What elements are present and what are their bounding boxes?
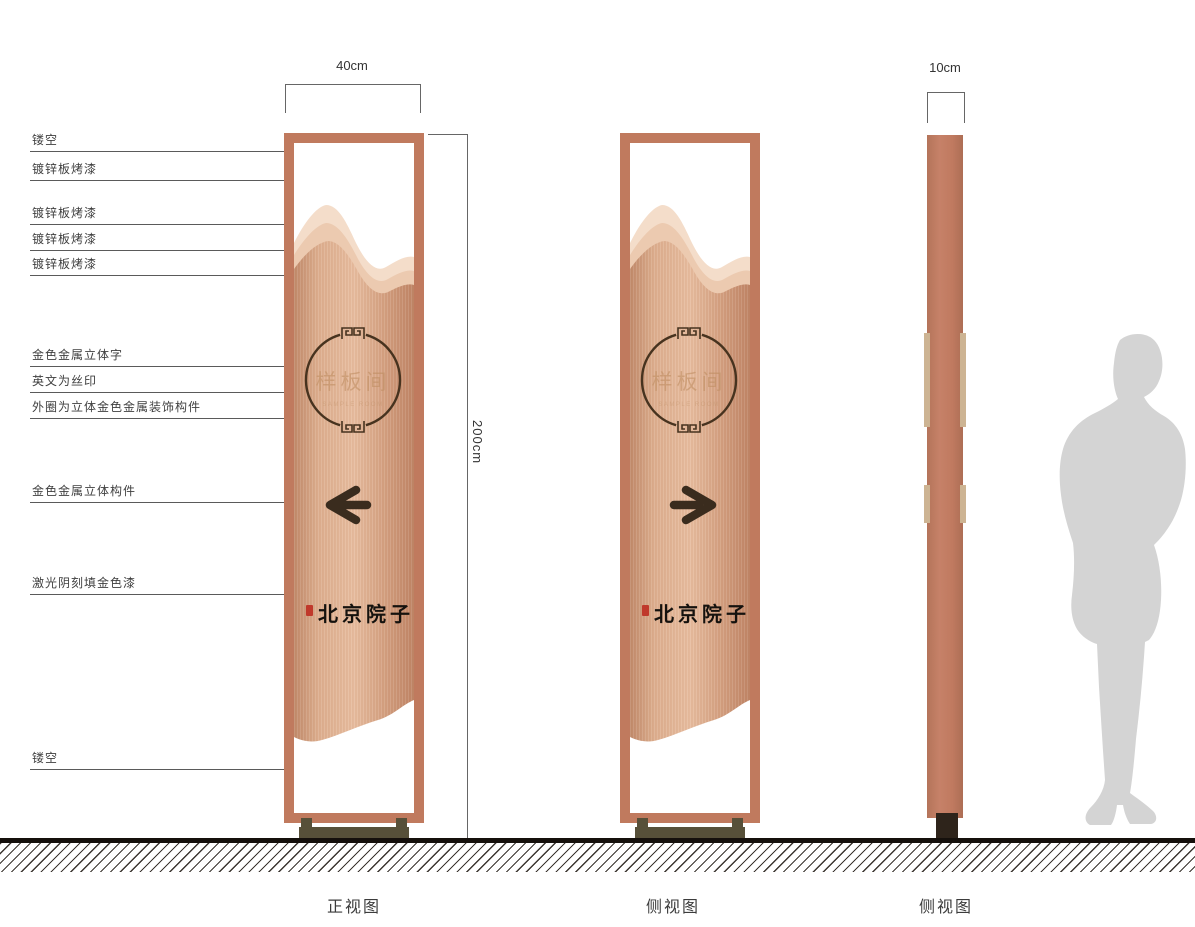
side-profile-sign bbox=[927, 135, 963, 818]
callout-text: 镀锌板烤漆 bbox=[32, 255, 97, 272]
stand-base bbox=[299, 827, 409, 838]
signage-spec-sheet: 镂空 镀锌板烤漆 镀锌板烤漆 镀锌板烤漆 镀锌板烤漆 金色金属立体字 英文为丝印… bbox=[0, 0, 1195, 927]
red-seal-icon bbox=[306, 605, 313, 616]
callout-text: 镀锌板烤漆 bbox=[32, 160, 97, 177]
ground-hatch bbox=[0, 843, 1195, 872]
side-view-sign: 样板间 SAMPLE ROOM 北京院子 bbox=[620, 133, 760, 823]
callout-label: 镀锌板烤漆 bbox=[30, 254, 293, 276]
profile-protrusion bbox=[924, 485, 930, 523]
callout-text: 外圈为立体金色金属装饰构件 bbox=[32, 398, 201, 415]
callout-text: 金色金属立体字 bbox=[32, 346, 123, 363]
side-view-artwork: 样板间 SAMPLE ROOM 北京院子 bbox=[630, 143, 750, 813]
callout-text: 金色金属立体构件 bbox=[32, 482, 136, 499]
profile-protrusion bbox=[960, 333, 966, 427]
room-name-text: 样板间 bbox=[316, 371, 391, 394]
width-dimension-label: 40cm bbox=[285, 58, 419, 73]
view-caption-front: 正视图 bbox=[294, 893, 414, 917]
room-name-english-text: SAMPLE ROOM bbox=[322, 402, 383, 408]
callout-text: 英文为丝印 bbox=[32, 372, 97, 389]
brand-name-text: 北京院子 bbox=[318, 602, 414, 626]
person-silhouette bbox=[1035, 332, 1195, 838]
profile-base bbox=[936, 813, 958, 838]
callout-text: 镂空 bbox=[32, 131, 58, 148]
profile-protrusion bbox=[960, 485, 966, 523]
callout-label: 外圈为立体金色金属装饰构件 bbox=[30, 397, 318, 419]
room-name-text: 样板间 bbox=[652, 371, 727, 394]
red-seal-icon bbox=[642, 605, 649, 616]
height-dimension-extension bbox=[428, 134, 467, 135]
stand-base bbox=[635, 827, 745, 838]
front-view-artwork: 样板间 SAMPLE ROOM 北京院子 bbox=[294, 143, 414, 813]
room-name-english-text: SAMPLE ROOM bbox=[658, 402, 719, 408]
height-dimension-label: 200cm bbox=[470, 420, 485, 464]
callout-label: 镂空 bbox=[30, 130, 307, 152]
callout-label: 镂空 bbox=[30, 748, 303, 770]
depth-dimension-label: 10cm bbox=[910, 60, 980, 75]
view-caption-profile: 侧视图 bbox=[886, 893, 1006, 917]
callout-label: 镀锌板烤漆 bbox=[30, 203, 322, 225]
profile-protrusion bbox=[924, 333, 930, 427]
brand-name-text: 北京院子 bbox=[654, 602, 750, 626]
front-view-sign: 样板间 SAMPLE ROOM 北京院子 bbox=[284, 133, 424, 823]
height-dimension-line bbox=[467, 134, 468, 843]
depth-dimension-bracket bbox=[927, 92, 965, 123]
callout-label: 镀锌板烤漆 bbox=[30, 159, 284, 181]
width-dimension-bracket bbox=[285, 84, 421, 113]
callout-text: 镂空 bbox=[32, 749, 58, 766]
view-caption-side: 侧视图 bbox=[613, 893, 733, 917]
callout-text: 镀锌板烤漆 bbox=[32, 204, 97, 221]
callout-text: 激光阴刻填金色漆 bbox=[32, 574, 136, 591]
callout-label: 镀锌板烤漆 bbox=[30, 229, 293, 251]
callout-text: 镀锌板烤漆 bbox=[32, 230, 97, 247]
